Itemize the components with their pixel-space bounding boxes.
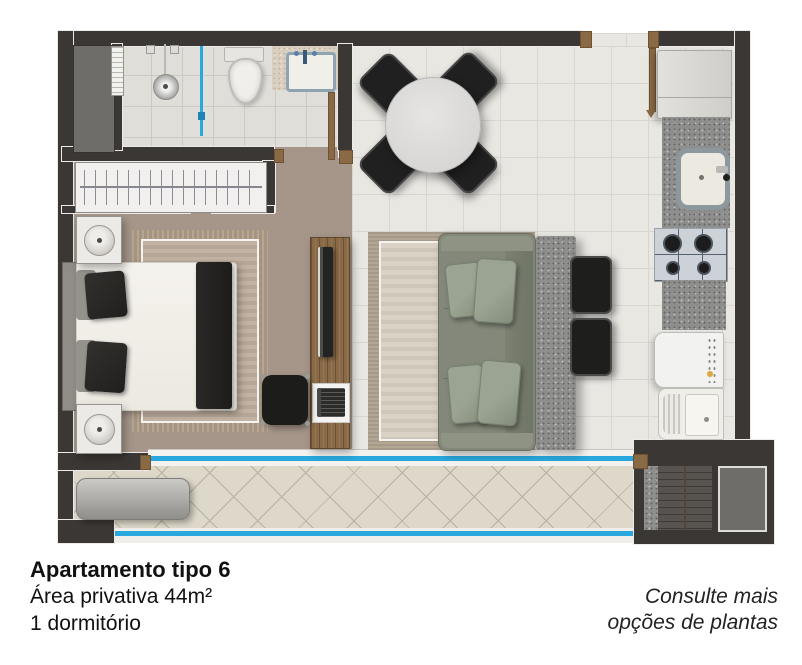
staircase	[658, 466, 712, 530]
sink-drain-dot	[699, 175, 704, 180]
entrance-door	[649, 48, 656, 112]
chair-arm-dot	[260, 374, 265, 379]
floor-plan-page: Apartamento tipo 6 Área privativa 44m² 1…	[0, 0, 802, 665]
entrance-door-swing-arrow	[646, 110, 656, 118]
sofa-cushion	[473, 258, 517, 325]
tank-basin	[685, 394, 719, 436]
wall-balcony-corner	[58, 520, 114, 543]
shower-valve-icon	[170, 45, 179, 54]
stair-landing-strip	[644, 466, 658, 530]
shower-glass-divider	[200, 46, 203, 136]
tv-sideboard	[310, 237, 350, 449]
table-lamp-icon	[84, 414, 115, 445]
closet-wardrobe	[75, 162, 267, 213]
window-jamb-right	[633, 454, 648, 469]
plan-title: Apartamento tipo 6	[30, 556, 230, 583]
note-block: Consulte mais opções de plantas	[608, 584, 778, 636]
shower-glass-handle	[198, 112, 205, 120]
fridge-door-seam	[658, 97, 731, 98]
duct-shaft	[73, 45, 115, 153]
bath-door-jamb	[274, 149, 284, 163]
bed-foot-runner	[196, 262, 232, 409]
shower-valve-icon	[146, 45, 155, 54]
tank-ribbed-board	[663, 394, 681, 434]
dining-table	[385, 77, 481, 173]
stove-burner	[697, 261, 711, 275]
note-line-1: Consulte mais	[608, 584, 778, 610]
faucet-handle-dot	[312, 51, 317, 56]
bathroom-door	[328, 92, 335, 160]
bedroom-door-jamb-right	[339, 150, 353, 164]
kitchen-counter-lower	[662, 280, 726, 330]
sink-faucet-icon	[716, 166, 728, 173]
vanity-faucet-icon	[303, 50, 307, 64]
wall-top	[58, 31, 582, 46]
plan-area: Área privativa 44m²	[30, 583, 230, 610]
caption-block: Apartamento tipo 6 Área privativa 44m² 1…	[30, 556, 230, 637]
sink-faucet-knob	[723, 174, 730, 181]
shower-pipe	[164, 44, 166, 78]
wall-right	[735, 31, 750, 443]
shaft-vent-louver	[111, 46, 124, 96]
stove-burner	[666, 261, 680, 275]
chair-arm-dot	[305, 421, 310, 426]
tank-drain-dot	[704, 417, 709, 422]
window-jamb-left	[140, 455, 151, 470]
desk-chair	[258, 372, 312, 428]
table-lamp-icon	[84, 225, 115, 256]
sofa-armrest-top	[441, 236, 533, 251]
closet-hangers	[84, 170, 258, 205]
bathroom-vanity	[272, 46, 338, 90]
stair-rail-line	[684, 466, 686, 530]
sofa-cushion	[476, 359, 521, 426]
stove-burner	[694, 234, 713, 253]
bed-pillow	[84, 270, 128, 319]
entrance-jamb-left	[580, 31, 592, 48]
entrance-threshold	[589, 33, 649, 46]
faucet-handle-dot	[294, 51, 299, 56]
wall-window-stub-left	[58, 453, 148, 470]
balcony-bench	[76, 478, 190, 520]
double-bed	[62, 262, 235, 409]
cooktop-stove	[654, 228, 728, 282]
stove-burner	[663, 234, 682, 253]
fridge	[657, 50, 732, 119]
bed-pillow	[84, 341, 127, 394]
washing-machine	[654, 332, 724, 388]
nightstand-top	[76, 216, 122, 264]
laptop-icon	[317, 388, 345, 417]
nightstand-bottom	[76, 404, 122, 454]
drain-dot	[163, 84, 168, 89]
balcony-sliding-window-glass	[148, 456, 634, 461]
plan-bedrooms: 1 dormitório	[30, 610, 230, 637]
chair-arm-dot	[305, 374, 310, 379]
console-stool	[570, 318, 612, 376]
desk-chair-seat	[262, 375, 308, 425]
wall-bath-dining	[338, 44, 352, 150]
note-line-2: opções de plantas	[608, 610, 778, 636]
lamp-finial-dot	[97, 427, 102, 432]
balcony-railing-glass	[114, 531, 634, 536]
chair-arm-dot	[260, 421, 265, 426]
shower-drain	[153, 74, 179, 100]
console-stool	[570, 256, 612, 314]
lamp-finial-dot	[97, 238, 102, 243]
laundry-tank-sink	[658, 388, 724, 440]
elevator-shaft	[718, 466, 767, 532]
vanity-sink	[286, 52, 336, 92]
sofa	[438, 233, 536, 451]
tv-icon	[318, 247, 333, 357]
kitchen-sink	[676, 148, 730, 210]
washer-knob-dot	[707, 371, 713, 377]
sofa-armrest-bottom	[441, 433, 533, 448]
entrance-jamb-right	[648, 31, 659, 48]
